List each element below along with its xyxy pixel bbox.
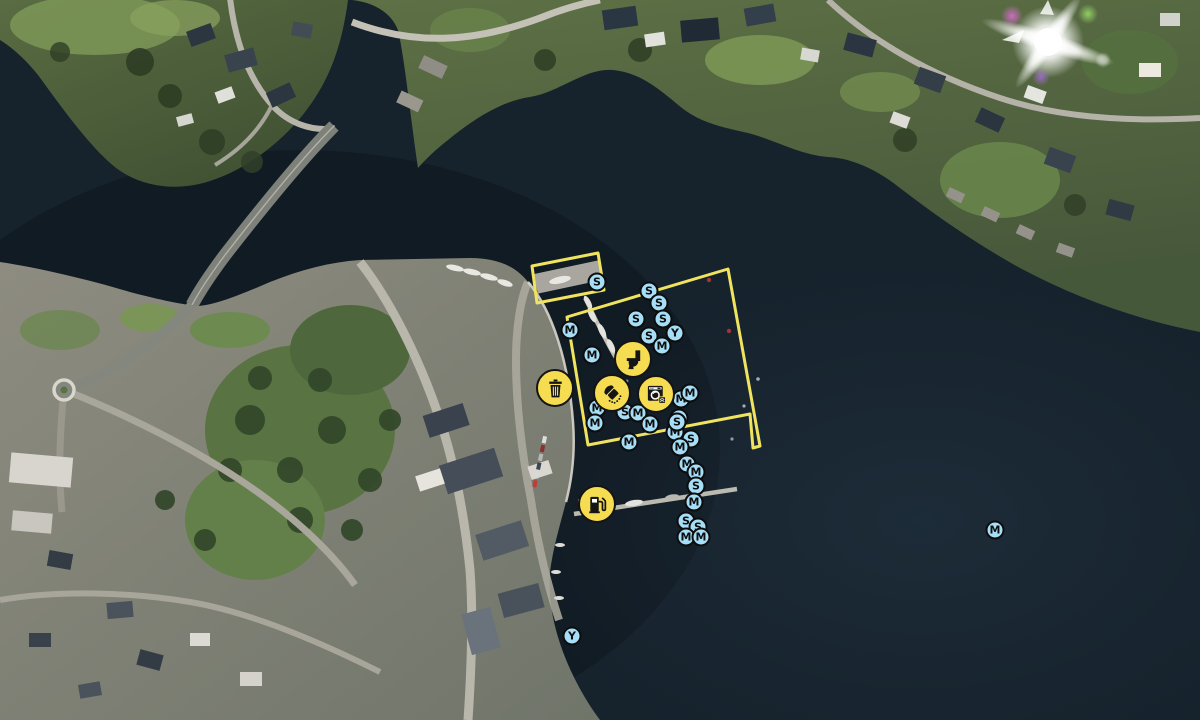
berth-letter: S [655,298,663,309]
berth-marker-m[interactable]: M [986,521,1005,540]
berth-letter: S [593,277,601,288]
berth-marker-m[interactable]: M [692,528,711,547]
berth-marker-m[interactable]: M [653,337,672,356]
berth-marker-s[interactable]: S [588,273,607,292]
berth-marker-m[interactable]: M [620,433,639,452]
berth-letter: M [689,497,700,508]
berth-letter: M [587,350,598,361]
berth-letter: S [692,481,700,492]
satellite-map[interactable]: SMMSSSSYSMMMSMSMMSMMMSMMMSMSSMMMY [0,0,1200,720]
marker-layer: SMMSSSSYSMMMSMSMMSMMMSMMMSMSSMMMY [0,0,1200,720]
service-marker-toilet[interactable] [614,340,652,378]
berth-letter: M [685,388,696,399]
berth-marker-s[interactable]: S [668,413,687,432]
berth-letter: M [624,437,635,448]
berth-letter: S [659,314,667,325]
berth-letter: M [990,525,1001,536]
berth-marker-m[interactable]: M [641,415,660,434]
service-marker-trash[interactable] [536,369,574,407]
berth-letter: M [657,341,668,352]
service-marker-laundry[interactable] [637,375,675,413]
service-marker-shower[interactable] [593,374,631,412]
berth-letter: M [681,532,692,543]
berth-letter: Y [671,328,679,339]
berth-marker-m[interactable]: M [561,321,580,340]
berth-letter: S [632,314,640,325]
berth-letter: M [565,325,576,336]
berth-marker-m[interactable]: M [685,493,704,512]
berth-letter: S [645,331,653,342]
berth-letter: M [696,532,707,543]
toilet-icon [622,348,645,371]
berth-letter: M [590,418,601,429]
fuel-pump-icon [586,493,609,516]
berth-marker-s[interactable]: S [627,310,646,329]
berth-letter: S [673,417,681,428]
laundry-icon [645,383,668,406]
berth-marker-m[interactable]: M [681,384,700,403]
shower-icon [601,382,624,405]
berth-marker-m[interactable]: M [586,414,605,433]
berth-marker-m[interactable]: M [583,346,602,365]
berth-letter: M [675,442,686,453]
berth-letter: M [645,419,656,430]
berth-letter: Y [568,631,576,642]
trash-icon [544,377,567,400]
berth-marker-y[interactable]: Y [563,627,582,646]
service-marker-fuel-pump[interactable] [578,485,616,523]
